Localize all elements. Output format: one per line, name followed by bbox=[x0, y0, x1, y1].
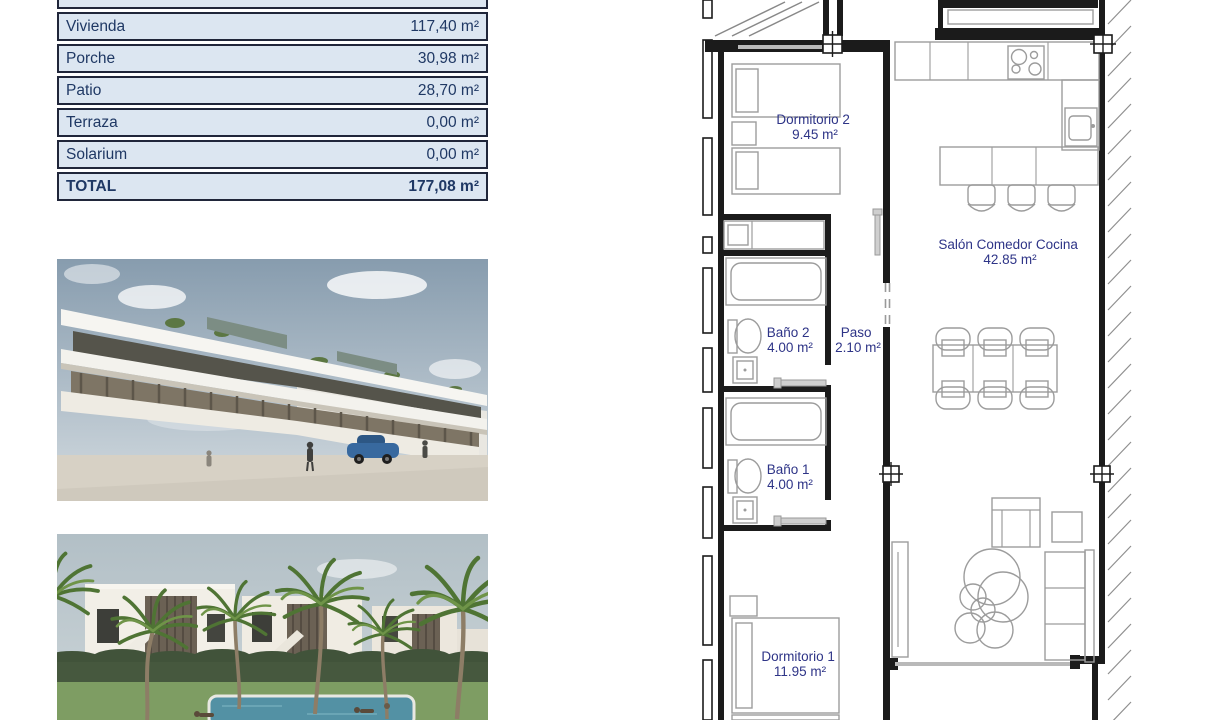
plus-markers bbox=[819, 31, 1116, 486]
row-label: Porche bbox=[66, 50, 115, 68]
neighbour-room-outline bbox=[948, 10, 1093, 24]
kitchen bbox=[895, 42, 1099, 150]
floor-plan: Dormitorio 2 9.45 m² Salón Comedor Cocin… bbox=[690, 0, 1207, 720]
row-value: 0,00 m² bbox=[426, 114, 479, 132]
pool-render-image bbox=[57, 534, 488, 720]
room-label-bano2: Baño 2 4.00 m² bbox=[767, 325, 814, 355]
table-row: Vivienda 117,40 m² bbox=[57, 12, 488, 41]
hedge bbox=[57, 649, 488, 684]
plus-marker-icon bbox=[819, 31, 846, 57]
floor-plan-drawing: Dormitorio 2 9.45 m² Salón Comedor Cocin… bbox=[690, 0, 1207, 720]
row-value: 0,00 m² bbox=[426, 146, 479, 164]
decor-circles bbox=[955, 549, 1028, 648]
total-label: TOTAL bbox=[66, 178, 116, 196]
table-row: Patio 28,70 m² bbox=[57, 76, 488, 105]
exterior-wall-segments bbox=[703, 0, 712, 720]
table-row: Terraza 0,00 m² bbox=[57, 108, 488, 137]
table-row: Porche 30,98 m² bbox=[57, 44, 488, 73]
pool-render-graphic bbox=[57, 534, 488, 720]
stove-icon bbox=[1008, 46, 1044, 79]
room-label-dormitorio2: Dormitorio 2 9.45 m² bbox=[776, 112, 853, 142]
breakfast-bar bbox=[940, 147, 1098, 211]
row-label: Patio bbox=[66, 82, 101, 100]
living-room-furniture bbox=[892, 498, 1094, 662]
stairs-diagonals bbox=[715, 2, 819, 36]
plus-marker-icon bbox=[1090, 462, 1114, 486]
row-label: Vivienda bbox=[66, 18, 125, 36]
exterior-render-image bbox=[57, 259, 488, 501]
bath2-fixtures bbox=[726, 258, 826, 388]
row-label: Terraza bbox=[66, 114, 118, 132]
row-label: Solarium bbox=[66, 146, 127, 164]
room-label-paso: Paso 2.10 m² bbox=[835, 325, 881, 355]
wardrobe bbox=[724, 221, 824, 249]
plus-marker-icon bbox=[1090, 31, 1116, 57]
room-label-salon: Salón Comedor Cocina 42.85 m² bbox=[938, 237, 1081, 267]
total-value: 177,08 m² bbox=[408, 178, 479, 196]
room-label-bano1: Baño 1 4.00 m² bbox=[767, 462, 814, 492]
corridor-door-leaf bbox=[873, 209, 882, 255]
plus-marker-icon bbox=[879, 462, 903, 486]
table-total-row: TOTAL 177,08 m² bbox=[57, 172, 488, 201]
exterior-render-graphic bbox=[57, 259, 488, 501]
table-row: Solarium 0,00 m² bbox=[57, 140, 488, 169]
dining-set bbox=[933, 328, 1057, 409]
row-value: 117,40 m² bbox=[410, 18, 479, 36]
table-clipped-header-row bbox=[57, 0, 488, 9]
party-wall-hatch bbox=[1108, 0, 1131, 720]
row-value: 28,70 m² bbox=[418, 82, 479, 100]
door-opening-dashes bbox=[886, 283, 890, 327]
sink-icon bbox=[1065, 108, 1097, 146]
surface-table: Vivienda 117,40 m² Porche 30,98 m² Patio… bbox=[57, 0, 488, 204]
row-value: 30,98 m² bbox=[418, 50, 479, 68]
